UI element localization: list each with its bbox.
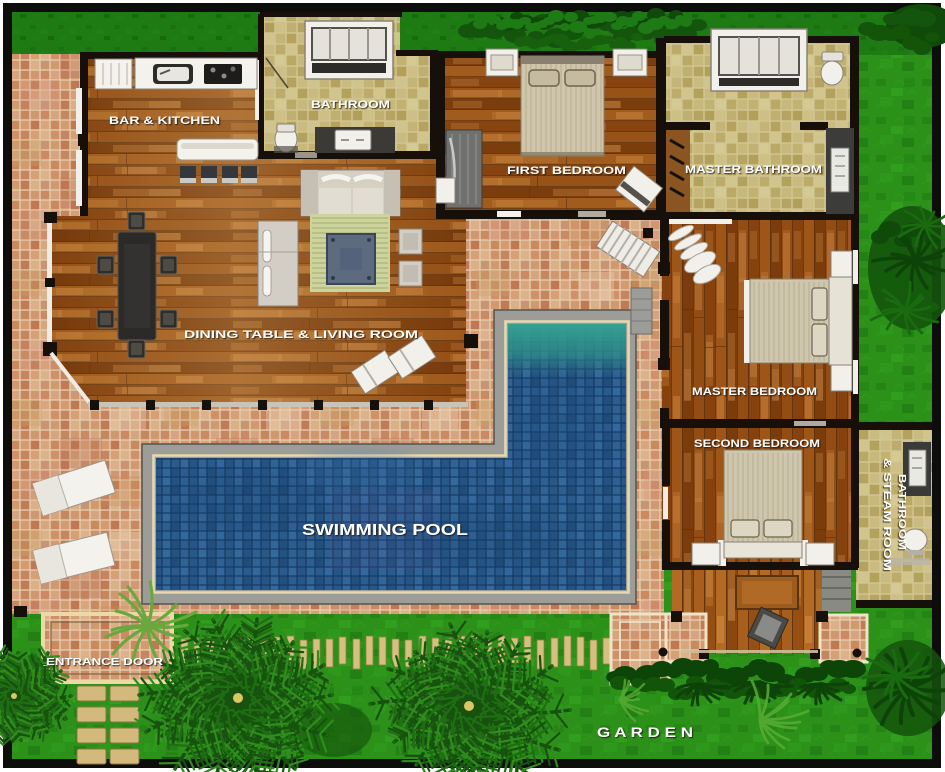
svg-text:FIRST BEDROOM: FIRST BEDROOM <box>507 165 626 177</box>
svg-text:DINING TABLE & LIVING ROOM: DINING TABLE & LIVING ROOM <box>184 329 418 341</box>
svg-text:MASTER BEDROOM: MASTER BEDROOM <box>692 386 817 398</box>
svg-text:BATHROOM: BATHROOM <box>896 474 908 550</box>
svg-text:SWIMMING POOL: SWIMMING POOL <box>302 522 468 539</box>
svg-text:ENTRANCE DOOR: ENTRANCE DOOR <box>46 656 164 668</box>
svg-text:BATHROOM: BATHROOM <box>311 99 390 111</box>
svg-text:SECOND BEDROOM: SECOND BEDROOM <box>694 438 820 450</box>
svg-text:G A R D E N: G A R D E N <box>597 724 693 740</box>
svg-text:MASTER BATHROOM: MASTER BATHROOM <box>685 164 822 176</box>
svg-text:& STEAM ROOM: & STEAM ROOM <box>881 458 893 571</box>
svg-text:BAR & KITCHEN: BAR & KITCHEN <box>109 115 220 127</box>
